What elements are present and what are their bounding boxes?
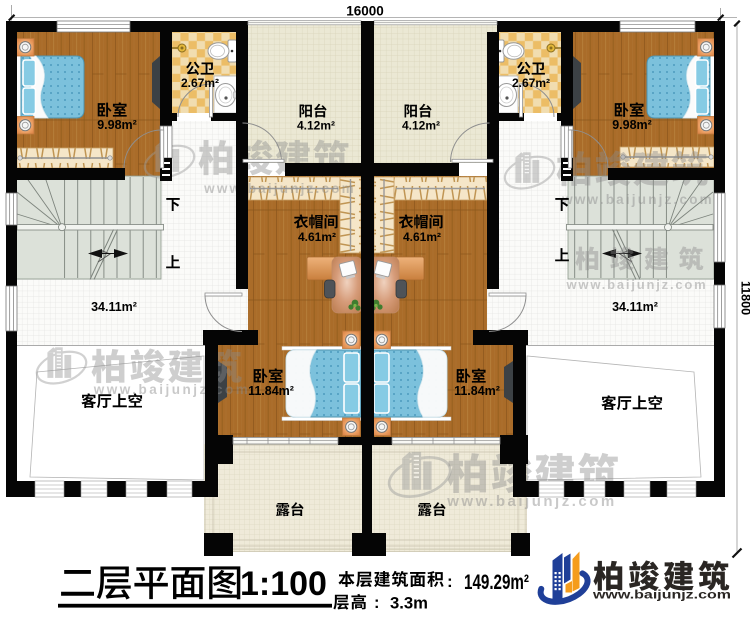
svg-text:4.61m²: 4.61m² [298,230,336,244]
svg-text:11800: 11800 [739,281,750,315]
svg-text:11.84m²: 11.84m² [248,384,294,398]
svg-text:4.12m²: 4.12m² [402,119,440,133]
svg-text:16000: 16000 [346,4,384,19]
svg-text:149.29m²: 149.29m² [464,571,529,594]
svg-text:2.67m²: 2.67m² [512,76,550,90]
svg-text:www.baijunjz.com: www.baijunjz.com [93,382,251,397]
svg-text:1:100: 1:100 [240,565,327,603]
svg-text:9.98m²: 9.98m² [97,118,137,132]
svg-text:2.67m²: 2.67m² [181,76,219,90]
svg-text:www.baijunjz.com: www.baijunjz.com [203,181,356,196]
svg-text:www.baijunjz.com: www.baijunjz.com [561,192,714,207]
svg-text:4.12m²: 4.12m² [297,119,335,133]
svg-text:34.11m²: 34.11m² [612,300,658,314]
svg-text:www.baijunjz.com: www.baijunjz.com [592,588,731,602]
svg-text::: : [447,572,453,591]
svg-text:9.98m²: 9.98m² [612,118,652,132]
svg-text:11.84m²: 11.84m² [454,384,500,398]
svg-text::: : [374,594,380,612]
svg-text:34.11m²: 34.11m² [91,300,137,314]
svg-text:4.61m²: 4.61m² [403,230,441,244]
svg-text:www.baijunjz.com: www.baijunjz.com [566,277,708,292]
svg-text:3.3m: 3.3m [390,594,428,613]
